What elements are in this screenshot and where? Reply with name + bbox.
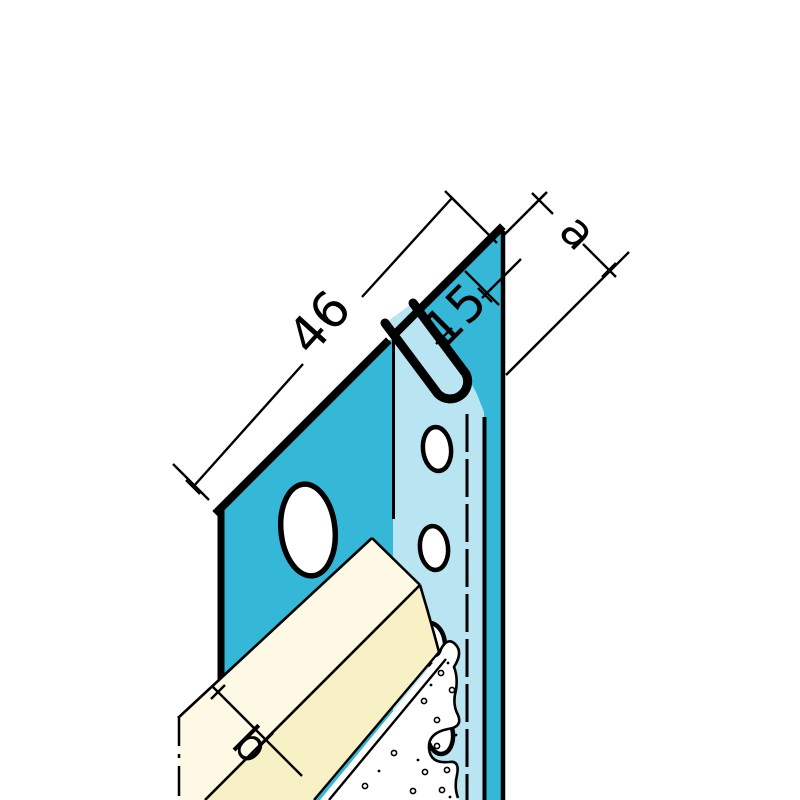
dimension-label-46: 46: [277, 280, 363, 366]
expansion-profile-diagram: 46 15 a b: [0, 0, 800, 800]
drawing-canvas: 46 15 a b: [0, 0, 800, 800]
dimension-label-a: a: [549, 203, 607, 261]
dim-line: [362, 198, 452, 297]
dim-line: [583, 244, 616, 277]
ext-line: [173, 464, 209, 500]
dimension-a: a: [503, 192, 629, 375]
